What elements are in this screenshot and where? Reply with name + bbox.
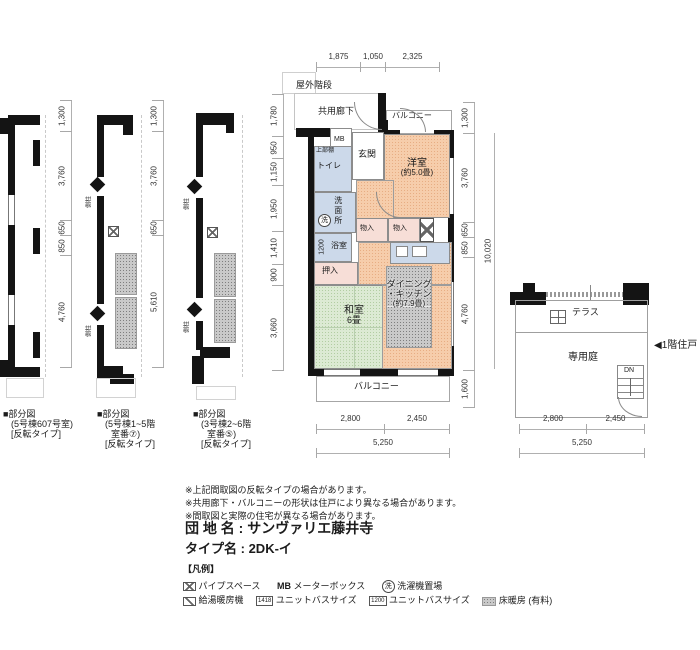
- hatched-wall: [546, 292, 623, 297]
- washer-place-symbol: 洗: [318, 214, 331, 227]
- corner-pillar: [90, 306, 106, 322]
- dk-label: ダイニング ・キッチン (約7.9畳): [378, 280, 440, 309]
- dim-label: 3,760: [150, 166, 159, 186]
- dim-label: 850: [58, 239, 67, 252]
- pillar-label: 側柱: [182, 198, 191, 210]
- caption-line: [反転タイプ]: [97, 440, 155, 450]
- water-heater-icon: [183, 597, 196, 606]
- right-dimension-chain: 1,300 3,760 650 850 4,760 1,600: [463, 102, 475, 408]
- dim-label: 1,600: [461, 379, 470, 399]
- bottom-balcony-label: バルコニー: [354, 382, 399, 392]
- terrace-total-chain: 5,250: [519, 448, 645, 458]
- terrace-label: テラス: [572, 308, 599, 318]
- legend-label: 床暖房 (有料): [499, 595, 553, 605]
- estate-name-value: サンヴァリエ藤井寺: [247, 520, 373, 536]
- kitchen-sink: [412, 246, 427, 257]
- stair-dn-label: DN: [624, 367, 634, 375]
- wall: [360, 369, 398, 376]
- type-name-row: タイプ名 : 2DK-イ: [185, 542, 292, 556]
- dim-label: 650: [150, 221, 159, 234]
- room-size: (約7.9畳): [378, 300, 440, 309]
- dim-label: 4,760: [58, 301, 67, 321]
- dim-label: 4,760: [461, 304, 470, 324]
- legend-label: 洗濯機置場: [397, 581, 442, 591]
- plan2-caption: ■部分図 (5号棟1~5階 室番⑦) [反転タイプ]: [97, 410, 155, 450]
- storage-label: 物入: [360, 225, 374, 233]
- type-name-label: タイプ名 :: [185, 541, 245, 556]
- meter-box-label: MB: [334, 136, 345, 144]
- meter-box-icon: MB: [277, 581, 291, 591]
- dim-label: 1,150: [270, 162, 279, 182]
- wall: [308, 369, 324, 376]
- left-dimension-chain: 1,780 950 1,150 1,950 1,410 900 3,660: [272, 94, 284, 371]
- caption-line: [反転タイプ]: [3, 430, 73, 440]
- plan3-caption: ■部分図 (3号棟2~6階 室番⑤) [反転タイプ]: [193, 410, 251, 450]
- legend-label: ユニットバスサイズ: [389, 595, 470, 605]
- dim-label: 950: [270, 141, 279, 154]
- washer-place-icon: 洗: [382, 580, 395, 593]
- top-dimension-chain: 1,875 1,050 2,325: [316, 62, 440, 72]
- pipe-space-icon: [108, 226, 119, 237]
- washroom-label: 洗面所: [333, 196, 342, 226]
- bottom-total-chain: 5,250: [316, 448, 450, 458]
- pillar-label: 側柱: [84, 325, 93, 337]
- caption-line: [反転タイプ]: [193, 440, 251, 450]
- outdoor-stairs-label: 屋外階段: [296, 81, 332, 91]
- dim-label: 3,760: [58, 166, 67, 186]
- estate-name-row: 団 地 名 : サンヴァリエ藤井寺: [185, 521, 373, 536]
- dim-label: 2,450: [605, 414, 625, 423]
- dim-label: 1,050: [363, 52, 383, 61]
- dim-label: 10,020: [484, 239, 493, 263]
- dim-label: 1,875: [328, 52, 348, 61]
- dim-label: 2,800: [543, 414, 563, 423]
- dim-label: 2,325: [402, 52, 422, 61]
- dim-label: 5,250: [373, 438, 393, 447]
- pillar-label: 側柱: [84, 196, 93, 208]
- kitchen-sink: [396, 246, 408, 257]
- terrace-dimension-chain: 2,800 2,450: [519, 424, 645, 434]
- entrance-label: 玄関: [358, 150, 376, 160]
- dim-label: 5,610: [150, 291, 159, 311]
- note-line: ※共用廊下・バルコニーの形状は住戸により異なる場合があります。: [185, 499, 461, 509]
- storage-label: 物入: [393, 225, 407, 233]
- stair-arrow: [630, 378, 631, 396]
- unit-bath-1200-icon: 1200: [369, 596, 386, 606]
- dim-label: 850: [461, 241, 470, 254]
- toilet-label: トイレ: [317, 162, 341, 171]
- first-floor-arrow-label: ◀1階住戸: [654, 340, 697, 351]
- dim-label: 1,410: [270, 238, 279, 258]
- plan1-caption: ■部分図 (5号棟607号室) [反転タイプ]: [3, 410, 73, 440]
- pillar-label: 側柱: [182, 321, 191, 333]
- legend-label: 給湯暖房機: [199, 595, 244, 605]
- pipe-space-icon: [420, 218, 434, 242]
- dim-label: 5,250: [572, 438, 592, 447]
- estate-name-label: 団 地 名 :: [185, 520, 243, 536]
- room-size: (約5.0畳): [384, 169, 450, 178]
- legend-title: 【凡例】: [183, 565, 219, 575]
- western-room-label: 洋室 (約5.0畳): [384, 158, 450, 178]
- bottom-dimension-chain: 2,800 2,450: [316, 424, 450, 434]
- total-dim-line: [494, 133, 495, 369]
- dim-label: 3,760: [461, 168, 470, 188]
- dim-label: 1,950: [270, 198, 279, 218]
- window-grid-icon: [550, 310, 566, 324]
- floor-heating-area: [115, 297, 137, 349]
- dim-label: 1,300: [58, 106, 67, 126]
- room-size: 6畳: [316, 316, 392, 326]
- floorplan-document: 1,875 1,050 2,325 屋外階段 共用廊下 バルコニー MB 玄関 …: [0, 0, 700, 650]
- dim-label: 650: [461, 223, 470, 236]
- corner-pillar: [90, 177, 106, 193]
- upper-shelf-label: 上部棚: [316, 148, 334, 155]
- terrace-divider: [516, 332, 647, 333]
- legend-label: ユニットバスサイズ: [276, 595, 357, 605]
- dim-label: 650: [58, 221, 67, 234]
- corridor-label: 共用廊下: [318, 107, 354, 117]
- wall: [438, 369, 454, 376]
- pipe-space-icon: [207, 227, 218, 238]
- pipe-space-icon: [183, 582, 196, 591]
- dim-label: 1,300: [461, 108, 470, 128]
- plan2-dimension-chain: 1,300 3,760 650 5,610: [152, 100, 164, 368]
- floor-heating-area: [115, 253, 137, 295]
- corner-pillar: [187, 302, 203, 318]
- notes: ※上記間取図の反転タイプの場合があります。 ※共用廊下・バルコニーの形状は住戸に…: [185, 486, 461, 522]
- legend-row-1: パイプスペース MB メーターボックス 洗 洗濯機置場: [183, 580, 442, 593]
- floor-heating-area: [214, 299, 236, 343]
- dim-label: 900: [270, 268, 279, 281]
- dim-label: 1,300: [150, 106, 159, 126]
- floor-heating-area: [214, 253, 236, 297]
- floor-heating-icon: [482, 597, 496, 606]
- bath-size-label: 1200: [319, 239, 326, 255]
- garden-label: 専用庭: [568, 352, 598, 363]
- note-line: ※上記間取図の反転タイプの場合があります。: [185, 486, 461, 496]
- legend-label: メーターボックス: [293, 581, 365, 591]
- window: [398, 369, 438, 376]
- dim-label: 2,800: [340, 414, 360, 423]
- window: [324, 369, 360, 376]
- corner-pillar: [187, 179, 203, 195]
- type-name-value: 2DK-イ: [249, 541, 292, 556]
- bath-label: 浴室: [331, 242, 347, 251]
- plan1-dimension-chain: 1,300 3,760 650 850 4,760: [60, 100, 72, 368]
- unit-bath-1418-icon: 1418: [256, 596, 273, 606]
- dim-label: 3,660: [270, 318, 279, 338]
- dim-label: 2,450: [407, 414, 427, 423]
- legend-row-2: 給湯暖房機 1418 ユニットバスサイズ 1200 ユニットバスサイズ 床暖房 …: [183, 596, 552, 606]
- legend-label: パイプスペース: [199, 581, 261, 591]
- oshiire-label: 押入: [322, 267, 338, 276]
- dim-label: 1,780: [270, 105, 279, 125]
